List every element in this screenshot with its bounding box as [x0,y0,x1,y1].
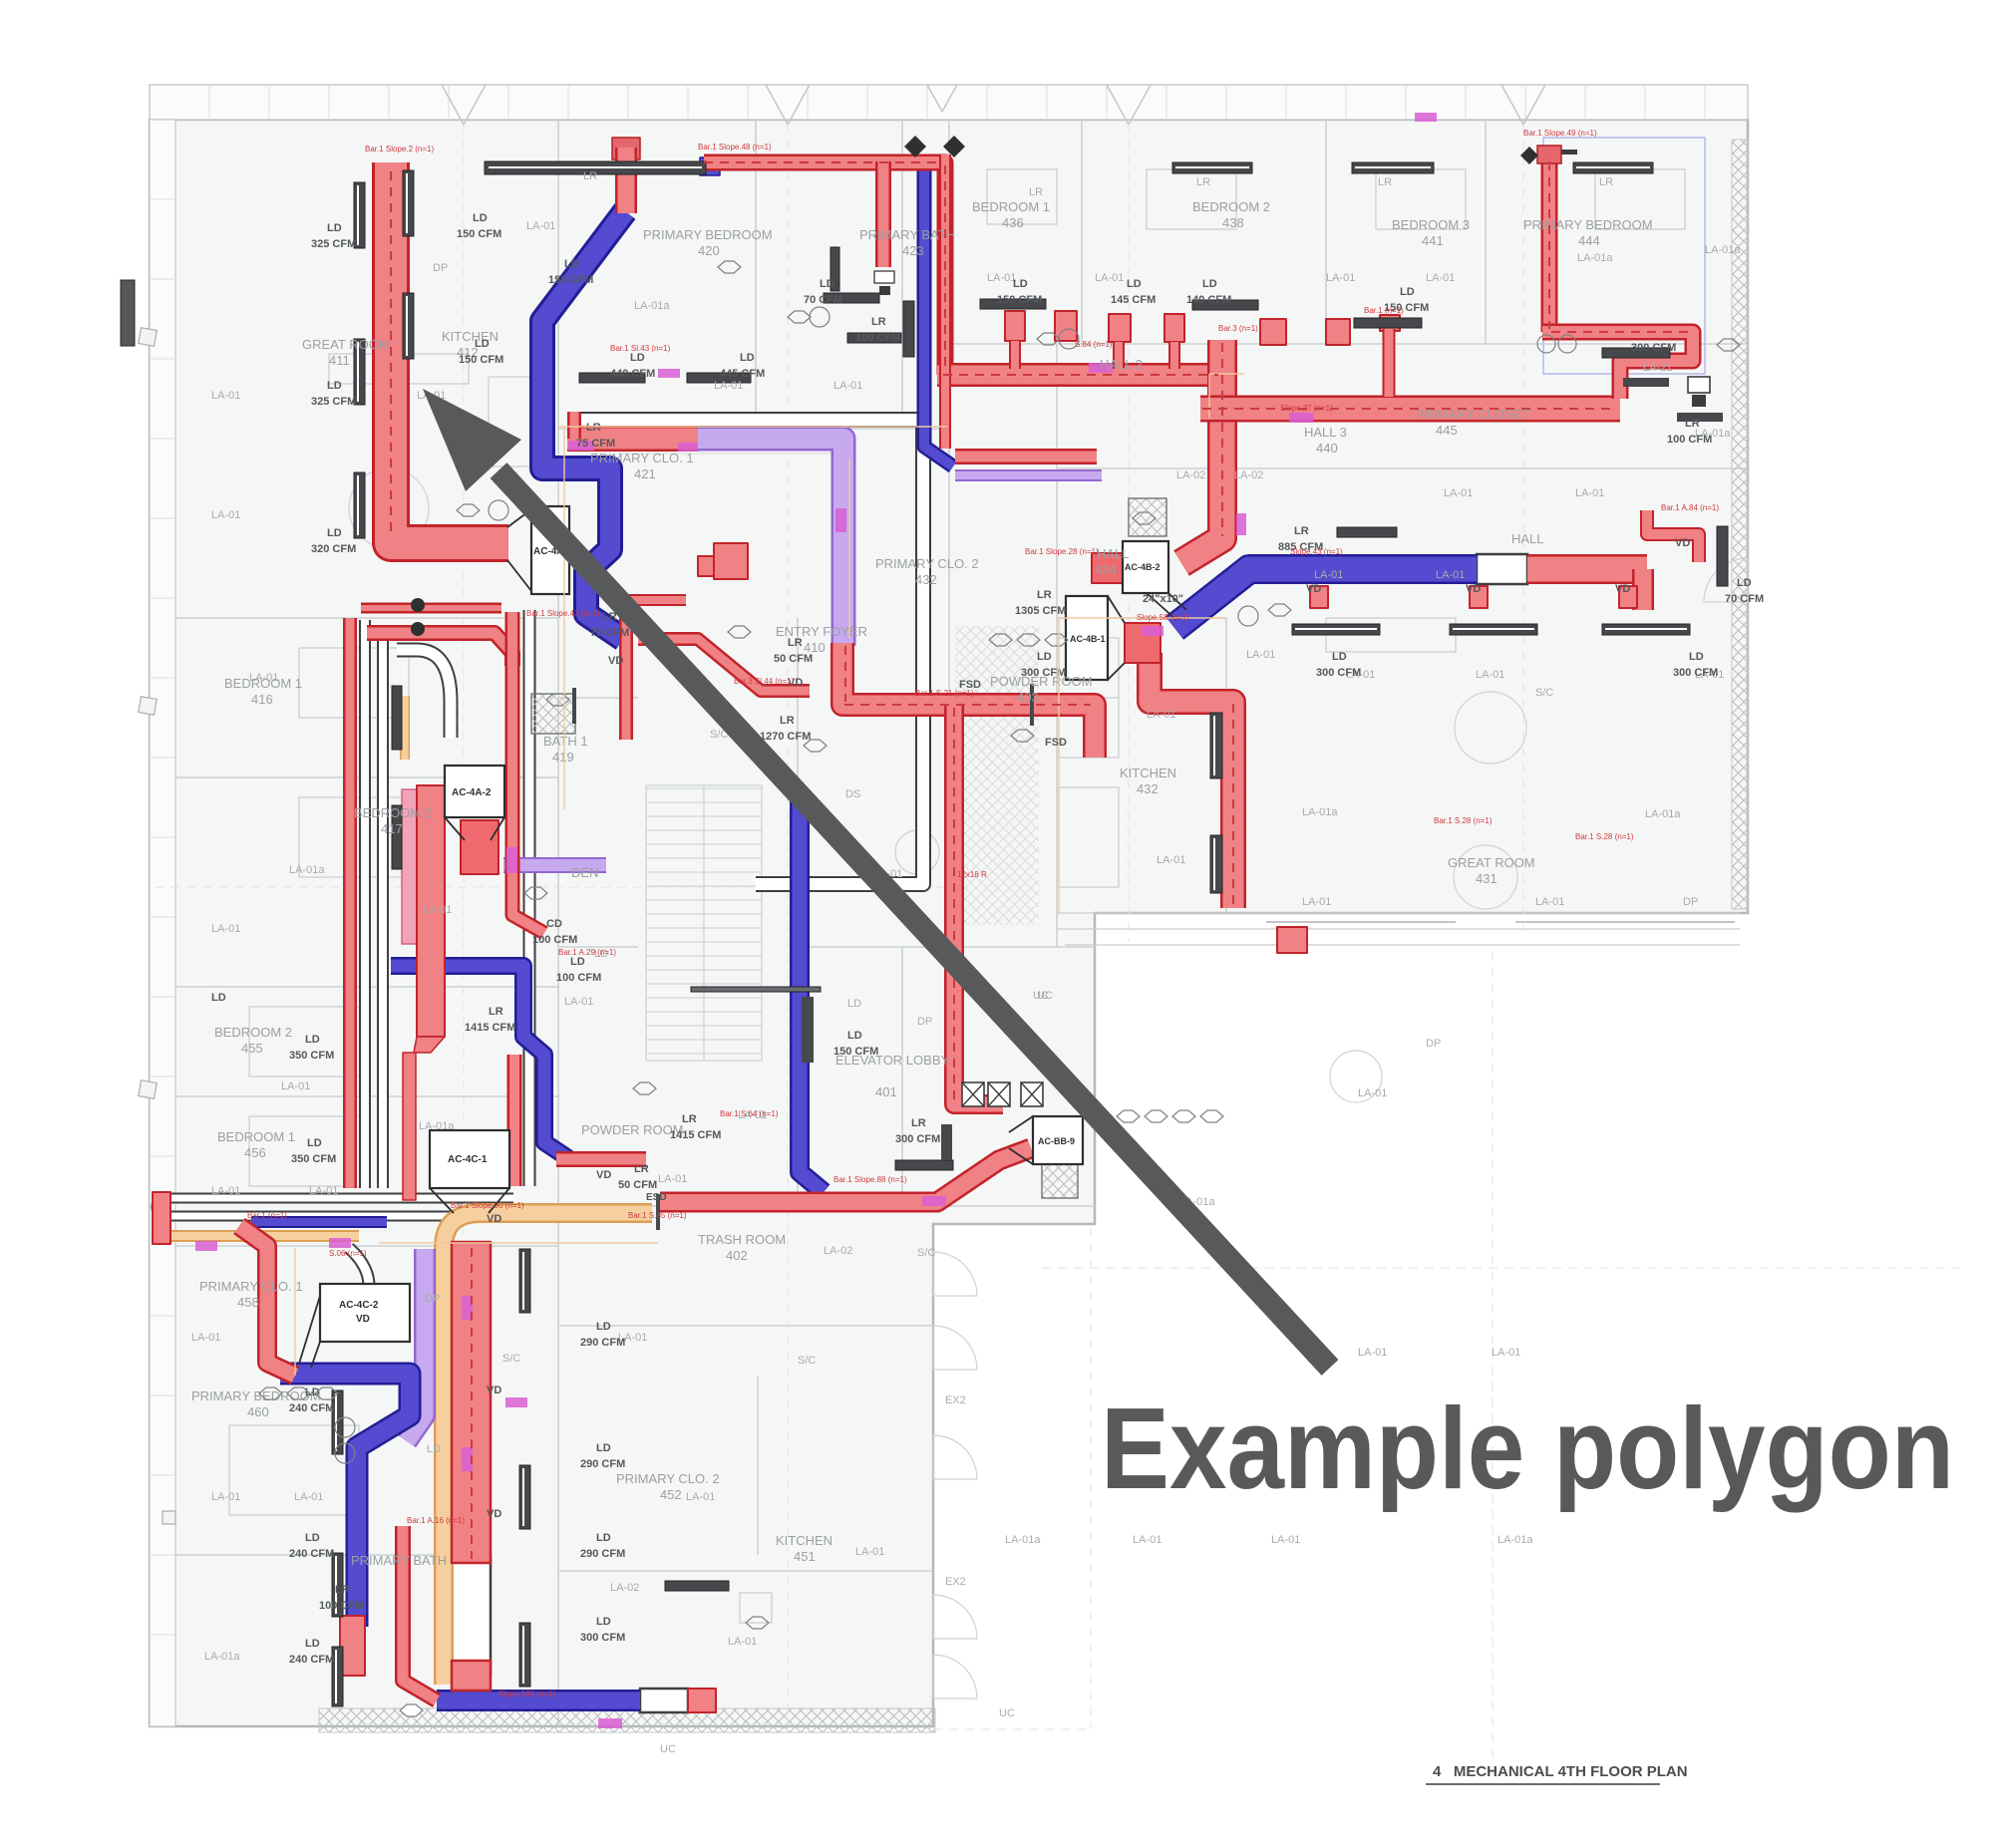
svg-text:LD: LD [307,1137,322,1149]
svg-text:LA-01a: LA-01a [1302,806,1338,818]
svg-text:50 CFM: 50 CFM [774,653,813,665]
svg-text:UC: UC [1033,990,1049,1002]
svg-text:BEDROOM 2: BEDROOM 2 [1192,199,1270,214]
svg-text:UC: UC [999,1707,1015,1719]
svg-text:VD: VD [608,655,623,667]
svg-text:LA-01: LA-01 [211,923,240,935]
svg-text:350 CFM: 350 CFM [289,1050,334,1062]
svg-text:BATH 1: BATH 1 [543,734,588,749]
svg-text:PRIMARY BEDROOM: PRIMARY BEDROOM [1523,217,1653,232]
svg-text:445 CFM: 445 CFM [720,368,765,380]
svg-text:AC-BB-9: AC-BB-9 [1038,1136,1075,1146]
svg-text:PRIMARY CLO. 2: PRIMARY CLO. 2 [616,1471,720,1486]
svg-text:LA-01a: LA-01a [289,864,325,876]
svg-text:ESD: ESD [646,1192,667,1203]
svg-text:LA-01: LA-01 [211,1185,240,1197]
svg-text:300 CFM: 300 CFM [895,1133,940,1145]
svg-text:LR: LR [911,1117,926,1129]
svg-text:HALL: HALL [1511,531,1544,546]
svg-text:Bar.1 Sl.43 (n=1): Bar.1 Sl.43 (n=1) [610,344,671,353]
svg-text:150 CFM: 150 CFM [997,294,1042,306]
svg-text:150 CFM: 150 CFM [548,274,593,286]
svg-text:HALL 3: HALL 3 [1304,425,1347,440]
svg-text:Bar.1 A.16 (n=1): Bar.1 A.16 (n=1) [407,1516,465,1525]
svg-text:LR: LR [1037,589,1052,601]
svg-text:50 CFM: 50 CFM [618,1179,657,1191]
svg-text:LR: LR [1196,176,1210,188]
svg-text:VD: VD [487,1508,501,1520]
svg-text:PRIMARY CLO. 1: PRIMARY CLO. 1 [590,451,694,465]
svg-text:401: 401 [875,1084,897,1099]
svg-text:VD: VD [1675,537,1690,549]
svg-text:70 CFM: 70 CFM [804,294,842,306]
svg-text:75 CFM: 75 CFM [576,438,615,450]
svg-text:LR: LR [682,1113,697,1125]
svg-text:LR: LR [1599,176,1613,188]
svg-text:440 CFM: 440 CFM [610,368,655,380]
svg-text:VD: VD [487,1213,501,1225]
svg-text:145 CFM: 145 CFM [1111,294,1156,306]
svg-text:456: 456 [244,1145,266,1160]
svg-text:VD: VD [596,1169,611,1181]
svg-text:LA-01: LA-01 [728,1636,757,1648]
svg-text:LR: LR [335,1584,350,1596]
svg-text:416: 416 [251,692,273,707]
svg-text:Bar.1 Slope.2 (n=1): Bar.1 Slope.2 (n=1) [365,145,434,154]
svg-text:DS: DS [845,788,860,800]
svg-text:BEDROOM 2: BEDROOM 2 [214,1025,292,1040]
svg-text:Slope.43 (n=1): Slope.43 (n=1) [1290,547,1343,556]
svg-text:1415 CFM: 1415 CFM [670,1129,721,1141]
svg-text:LD: LD [564,258,579,270]
svg-text:Bar.1 S.85 (n=1): Bar.1 S.85 (n=1) [628,1211,687,1220]
svg-text:LA-01: LA-01 [714,380,743,392]
svg-text:LA-01: LA-01 [1133,1534,1162,1546]
svg-text:PRIMARY CLO. 1: PRIMARY CLO. 1 [199,1279,303,1294]
svg-text:LA-01: LA-01 [211,1491,240,1503]
svg-text:LA-01a: LA-01a [1005,1534,1041,1546]
svg-text:LD: LD [327,380,342,392]
svg-text:AC-4B-2: AC-4B-2 [1125,562,1161,572]
svg-text:PRIMARY BATH: PRIMARY BATH [351,1553,447,1568]
svg-text:LD: LD [847,998,861,1010]
svg-text:LR: LR [1685,418,1700,430]
svg-text:LA-02: LA-02 [1234,469,1263,481]
svg-text:Bar.1 S.28 (n=1): Bar.1 S.28 (n=1) [1434,816,1493,825]
svg-text:DEN: DEN [571,865,598,880]
svg-text:BEDROOM 3: BEDROOM 3 [1392,217,1470,232]
svg-text:LA-01: LA-01 [1095,272,1124,284]
svg-text:12x18 R: 12x18 R [957,870,987,879]
svg-text:LR: LR [583,170,597,182]
svg-text:LD: LD [1202,278,1217,290]
svg-text:LA-01: LA-01 [1492,1347,1520,1359]
svg-text:LA-01: LA-01 [1426,272,1455,284]
svg-text:LD: LD [1400,286,1415,298]
svg-text:LD: LD [596,1532,611,1544]
svg-text:445: 445 [1436,423,1458,438]
svg-text:LD: LD [1013,278,1028,290]
svg-text:LR: LR [788,637,803,649]
svg-text:LA-01: LA-01 [658,1173,687,1185]
svg-text:300 CFM: 300 CFM [1673,667,1718,679]
svg-text:LA-01: LA-01 [294,1491,323,1503]
svg-text:LA-01: LA-01 [249,672,278,684]
svg-text:DP: DP [425,1293,440,1305]
svg-text:EX2: EX2 [945,1576,966,1588]
svg-text:LR: LR [780,715,795,727]
svg-text:LR: LR [871,316,886,328]
svg-text:HALL 2: HALL 2 [1100,357,1143,372]
svg-text:1415 CFM: 1415 CFM [465,1022,515,1034]
svg-text:444: 444 [1578,233,1600,248]
svg-text:1270 CFM: 1270 CFM [760,731,811,743]
svg-text:LD: LD [305,1638,320,1650]
svg-text:432: 432 [1137,781,1159,796]
svg-text:455: 455 [241,1041,263,1056]
svg-text:LA-02: LA-02 [1176,469,1205,481]
svg-text:320 CFM: 320 CFM [311,543,356,555]
svg-text:HALL: HALL [1097,546,1130,561]
svg-text:LA-01: LA-01 [1476,669,1504,681]
svg-text:Bar.3 Sl.44 (n=1): Bar.3 Sl.44 (n=1) [734,677,795,686]
svg-text:LA-01: LA-01 [1157,854,1185,866]
svg-text:Bar.1 Slope.90 (n=1): Bar.1 Slope.90 (n=1) [451,1201,524,1210]
svg-text:LD: LD [327,527,342,539]
svg-text:LR: LR [489,1006,503,1018]
svg-text:Bar.1 S.64 (n=1): Bar.1 S.64 (n=1) [720,1109,779,1118]
svg-text:Bar.1 Slope.48 (n=1): Bar.1 Slope.48 (n=1) [698,143,772,152]
svg-text:BEDROOM 2: BEDROOM 2 [354,805,432,820]
svg-text:LD: LD [740,352,755,364]
svg-text:AC-4B-1: AC-4B-1 [1070,634,1106,644]
svg-text:LA-01: LA-01 [1358,1087,1387,1099]
svg-text:4 MECHANICAL 4TH FLOOR PLAN: 4 MECHANICAL 4TH FLOOR PLAN [1433,1763,1688,1780]
svg-text:LD: LD [847,1030,862,1042]
svg-text:LA-01: LA-01 [1147,709,1175,721]
svg-text:LA-01: LA-01 [211,390,240,402]
svg-text:POWDER ROOM: POWDER ROOM [581,1122,684,1137]
svg-text:TRASH ROOM: TRASH ROOM [698,1232,786,1247]
svg-text:LD: LD [427,1443,441,1455]
svg-text:452: 452 [660,1487,682,1502]
svg-text:LA-01a: LA-01a [204,1651,240,1663]
svg-text:LA-01: LA-01 [833,380,862,392]
svg-text:402: 402 [726,1248,748,1263]
svg-text:LR: LR [1378,176,1392,188]
svg-text:AC-4C-2: AC-4C-2 [339,1300,379,1311]
svg-text:419: 419 [552,750,574,765]
svg-text:PRIMARY BEDROOM: PRIMARY BEDROOM [643,227,773,242]
svg-text:460: 460 [247,1404,269,1419]
svg-text:300 CFM: 300 CFM [1631,342,1676,354]
svg-text:290 CFM: 290 CFM [580,1548,625,1560]
svg-text:150 CFM: 150 CFM [833,1046,878,1058]
svg-text:100 CFM: 100 CFM [532,934,577,946]
svg-text:LA-01: LA-01 [423,904,452,916]
svg-text:LD: LD [570,956,585,968]
svg-text:DP: DP [917,1016,932,1028]
svg-text:LD: LD [1689,651,1704,663]
svg-text:300 CFM: 300 CFM [580,1632,625,1644]
svg-text:70 CFM: 70 CFM [1725,593,1764,605]
svg-text:LA-02: LA-02 [824,1245,852,1257]
svg-text:CD: CD [546,918,562,930]
svg-text:LD: LD [596,1442,611,1454]
svg-text:LA-01: LA-01 [309,1185,338,1197]
svg-text:LA-01a: LA-01a [1645,808,1681,820]
svg-text:100 CFM: 100 CFM [556,972,601,984]
svg-text:441: 441 [1422,233,1444,248]
svg-text:150 CFM: 150 CFM [457,228,501,240]
svg-text:UC: UC [660,1743,676,1755]
svg-text:BEDROOM 1: BEDROOM 1 [217,1129,295,1144]
svg-text:LA-01: LA-01 [1314,569,1343,581]
svg-text:EX2: EX2 [945,1394,966,1406]
svg-text:LD: LD [1332,651,1347,663]
svg-text:S/C: S/C [917,1247,935,1259]
svg-text:VD: VD [1466,583,1481,595]
svg-text:Slope.58 (n=1): Slope.58 (n=1) [1137,613,1189,622]
svg-text:DP: DP [1683,896,1698,908]
svg-text:GREAT ROOM: GREAT ROOM [1448,855,1535,870]
svg-text:240 CFM: 240 CFM [289,1654,334,1666]
svg-text:PRIMARY BATH: PRIMARY BATH [859,227,955,242]
svg-text:S/C: S/C [502,1353,520,1365]
svg-text:LD: LD [630,352,645,364]
svg-text:BEDROOM 1: BEDROOM 1 [972,199,1050,214]
svg-text:LA-01: LA-01 [211,509,240,521]
svg-text:Bar.1 A.84 (n=1): Bar.1 A.84 (n=1) [1661,503,1719,512]
svg-text:LA-01: LA-01 [281,1080,310,1092]
svg-text:LA-01: LA-01 [1271,1534,1300,1546]
svg-text:LA-01: LA-01 [1575,487,1604,499]
svg-text:GREAT ROOM: GREAT ROOM [302,337,390,352]
svg-text:325 CFM: 325 CFM [311,396,356,408]
svg-text:LD: LD [475,338,490,350]
svg-text:DP: DP [433,262,448,274]
svg-text:LA-01: LA-01 [1358,1347,1387,1359]
svg-text:LA-01a: LA-01a [1497,1534,1533,1546]
svg-text:AC-4C-1: AC-4C-1 [448,1154,488,1165]
svg-text:Bar.1 (n=1): Bar.1 (n=1) [247,1211,287,1220]
svg-text:KITCHEN: KITCHEN [442,329,498,344]
svg-text:423: 423 [902,243,924,258]
svg-text:PRIMARY BEDROOM: PRIMARY BEDROOM [191,1388,321,1403]
svg-text:LA-21: LA-21 [1643,362,1672,374]
svg-text:KITCHEN: KITCHEN [776,1533,832,1548]
svg-text:431: 431 [1476,871,1497,886]
svg-text:S.84 (n=1): S.84 (n=1) [1075,340,1113,349]
svg-text:LD: LD [305,1034,320,1046]
svg-text:LA-01a: LA-01a [1705,244,1741,256]
svg-text:LA-01: LA-01 [686,1491,715,1503]
svg-text:LA-01a: LA-01a [634,300,670,312]
svg-text:451: 451 [794,1549,816,1564]
svg-text:Bar.1 Slope.49 (n=1): Bar.1 Slope.49 (n=1) [1523,129,1597,138]
svg-text:Bar.1 S.28 (n=1): Bar.1 S.28 (n=1) [1575,832,1634,841]
svg-text:LA-01: LA-01 [191,1332,220,1344]
svg-text:S.06 (n=1): S.06 (n=1) [329,1249,367,1258]
svg-text:403: 403 [1017,690,1039,705]
svg-text:LR: LR [1029,186,1043,198]
svg-text:420: 420 [698,243,720,258]
svg-text:LD: LD [1037,651,1052,663]
svg-text:LD: LD [1737,577,1752,589]
svg-text:411: 411 [329,353,350,368]
svg-text:LD: LD [596,1616,611,1628]
svg-text:150 CFM: 150 CFM [459,354,503,366]
svg-text:Bar.1 (n=1): Bar.1 (n=1) [1364,306,1404,315]
svg-text:Bar.1 Slope.88 (n=1): Bar.1 Slope.88 (n=1) [833,1175,907,1184]
svg-text:S/C: S/C [798,1355,816,1367]
svg-text:290 CFM: 290 CFM [580,1337,625,1349]
svg-text:LD: LD [305,1532,320,1544]
svg-text:Example polygon: Example polygon [1101,1384,1954,1513]
svg-text:Bar.1 Slope.43 (n=1): Bar.1 Slope.43 (n=1) [526,609,600,618]
svg-text:432: 432 [915,572,937,587]
svg-text:LD: LD [820,278,834,290]
svg-text:LA-01: LA-01 [1535,896,1564,908]
svg-text:LA-01a: LA-01a [1577,252,1613,264]
svg-text:434: 434 [1095,562,1117,577]
svg-text:Bar.1 A.29 (n=1): Bar.1 A.29 (n=1) [558,948,616,957]
svg-text:FSD: FSD [1045,737,1067,749]
svg-text:325 CFM: 325 CFM [311,238,356,250]
svg-text:VD: VD [487,1385,501,1396]
svg-text:LA-01: LA-01 [1326,272,1355,284]
svg-text:LA-01: LA-01 [1246,649,1275,661]
svg-text:LD: LD [211,992,226,1004]
svg-text:240 CFM: 240 CFM [289,1548,334,1560]
svg-text:LA-01: LA-01 [564,996,593,1008]
svg-text:LD: LD [1127,278,1142,290]
svg-text:LA-01: LA-01 [1444,487,1473,499]
svg-text:421: 421 [634,466,656,481]
svg-text:PRIMARY CLO. 2: PRIMARY CLO. 2 [875,556,979,571]
svg-text:1305 CFM: 1305 CFM [1015,605,1066,617]
svg-text:290 CFM: 290 CFM [580,1458,625,1470]
svg-text:LA-01: LA-01 [526,220,555,232]
svg-text:AC-4A-2: AC-4A-2 [452,787,492,798]
svg-text:LR: LR [586,422,601,434]
svg-text:100 CFM: 100 CFM [319,1600,364,1612]
svg-text:100 CFM: 100 CFM [1667,434,1712,446]
svg-text:Bar.1 Slope.28 (n=1): Bar.1 Slope.28 (n=1) [1025,547,1099,556]
svg-text:240 CFM: 240 CFM [289,1402,334,1414]
svg-text:LD: LD [473,212,488,224]
svg-text:LD: LD [596,1321,611,1333]
svg-text:LR: LR [602,611,617,623]
svg-text:LA-01a: LA-01a [419,1120,455,1132]
svg-text:VD: VD [1306,583,1321,595]
svg-text:440: 440 [1316,441,1338,456]
svg-text:KITCHEN: KITCHEN [1120,766,1176,780]
svg-text:300 CFM: 300 CFM [1316,667,1361,679]
svg-text:Slope.100 (n=1): Slope.100 (n=1) [498,1690,555,1698]
svg-text:417: 417 [381,821,403,836]
svg-text:VD: VD [356,1314,370,1325]
svg-text:LD: LD [327,222,342,234]
svg-text:140 CFM: 140 CFM [1186,294,1231,306]
svg-text:458: 458 [237,1295,259,1310]
svg-text:100 CFM: 100 CFM [855,332,900,344]
svg-text:Bar.1 S.21 (n=1): Bar.1 S.21 (n=1) [915,689,974,698]
svg-text:LA-01: LA-01 [1302,896,1331,908]
svg-text:LR: LR [634,1163,649,1175]
svg-text:75 CFM: 75 CFM [590,627,629,639]
svg-text:LA-02: LA-02 [610,1582,639,1594]
svg-text:LA-01: LA-01 [855,1546,884,1558]
svg-text:LA-01: LA-01 [1436,569,1465,581]
svg-text:350 CFM: 350 CFM [291,1153,336,1165]
svg-text:Bar.3 (n=1): Bar.3 (n=1) [1218,324,1258,333]
svg-text:LR: LR [1294,525,1309,537]
svg-text:VD: VD [1615,583,1630,595]
svg-text:LA-01: LA-01 [987,272,1016,284]
svg-text:S/C: S/C [1535,687,1553,699]
svg-text:24"x10": 24"x10" [1143,593,1183,605]
svg-text:438: 438 [1222,215,1244,230]
svg-text:436: 436 [1002,215,1024,230]
svg-text:DP: DP [1426,1038,1441,1050]
svg-text:LD: LD [305,1386,320,1398]
